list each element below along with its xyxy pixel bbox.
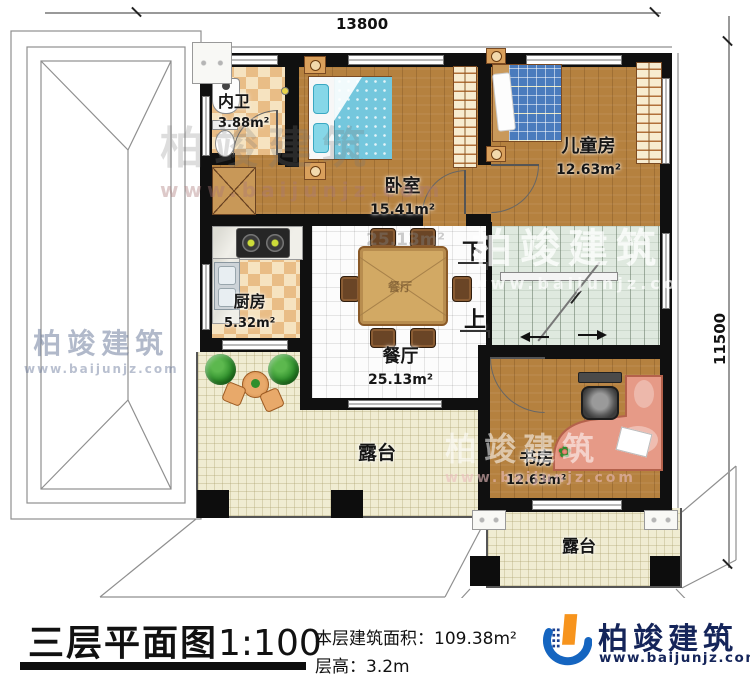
stairs-up-leader [460, 330, 490, 332]
stairs-up-leader-drop [488, 330, 490, 338]
title-underline [20, 662, 306, 670]
table-label: 餐厅 [388, 278, 412, 295]
floor-area-label: 本层建筑面积： [315, 629, 434, 649]
pillow [313, 84, 329, 114]
window [532, 500, 622, 510]
wall-segment [278, 153, 299, 165]
closet [212, 167, 256, 215]
stairs-area [490, 226, 660, 347]
room-area: 5.32m² [224, 316, 275, 331]
room-name: 卧室 [385, 176, 421, 197]
stairs-down-leader [458, 262, 488, 264]
window [202, 96, 210, 156]
brand-logo-icon [538, 610, 592, 674]
brand-url: www.baijunjz.com [599, 650, 750, 666]
sink-basin [218, 266, 236, 285]
nightstand [304, 56, 326, 74]
toilet-bowl [215, 130, 235, 157]
bedroom-door-leaf [464, 170, 466, 214]
room-area: 3.88m² [218, 116, 269, 131]
floor-height-label: 层高： [315, 657, 366, 677]
wardrobe [636, 62, 662, 164]
wall-lamp-icon [281, 87, 289, 95]
wardrobe [453, 66, 477, 168]
floor-area-value: 109.38m² [434, 629, 517, 649]
floor-plan-canvas: 13800 11500 [0, 0, 750, 683]
floor-height-line: 层高：3.2m [315, 652, 410, 677]
stairs-down-leader-drop [486, 262, 488, 270]
plan-scale: 1:100 [218, 623, 322, 664]
room-label-bathroom: 内卫 3.88m² [218, 88, 269, 131]
wall-segment [285, 53, 299, 167]
column [470, 556, 500, 586]
dining-chair [340, 276, 360, 302]
window [348, 55, 444, 65]
patio-table-plant-icon [251, 379, 260, 388]
stairs-handrail [500, 272, 618, 281]
sliding-door-window [348, 400, 442, 408]
burner-icon [242, 234, 260, 252]
window [222, 340, 288, 350]
room-name: 儿童房 [562, 136, 616, 157]
room-name: 餐厅 [383, 346, 419, 367]
wall-segment [478, 345, 490, 512]
dimension-top-value: 13800 [336, 15, 388, 33]
terrace-small-label: 露台 [562, 532, 596, 557]
kids-room-door-leaf [491, 164, 539, 166]
bed-plaid-blanket [509, 65, 561, 141]
dining-ghost-area: 25.13m² [366, 230, 445, 250]
window [662, 233, 670, 309]
column [650, 556, 680, 586]
bed-kids [492, 64, 562, 142]
room-area: 25.13m² [368, 372, 433, 388]
room-name: 厨房 [234, 292, 266, 311]
bed-double [308, 76, 392, 160]
stove [236, 228, 290, 258]
ornament-corbel [192, 42, 232, 84]
bathroom-door-leaf [276, 110, 278, 155]
window [202, 264, 210, 330]
plan-title-text: 三层平面图 [28, 623, 218, 664]
dining-table: 餐厅 [358, 246, 448, 326]
column [197, 490, 229, 518]
room-label-bedroom: 卧室 15.41m² [370, 172, 435, 219]
office-chair [581, 386, 619, 420]
room-area: 12.63m² [556, 162, 621, 178]
stairs-arrow-icon [597, 330, 607, 340]
floor-area-line: 本层建筑面积：109.38m² [315, 624, 517, 649]
room-area: 12.63m² [506, 473, 566, 488]
dimension-right-value: 11500 [711, 309, 729, 369]
nightstand [486, 146, 506, 162]
stairs-arrow-line [578, 334, 598, 336]
wall-segment [486, 222, 492, 347]
room-label-study: 书房 12.63m² [506, 444, 566, 489]
monitor [578, 372, 622, 383]
room-name: 书房 [519, 449, 553, 469]
nightstand [304, 162, 326, 180]
room-label-dining: 餐厅 25.13m² [368, 342, 433, 389]
ornament-corbel [644, 510, 678, 530]
plant [205, 354, 236, 385]
terrace-main-label: 露台 [358, 438, 396, 465]
nightstand [486, 48, 506, 64]
plant [268, 354, 299, 385]
burner-icon [266, 234, 284, 252]
window [662, 78, 670, 164]
ornament-corbel [472, 510, 506, 530]
dining-chair [452, 276, 472, 302]
wall-segment [200, 214, 307, 226]
stairs-arrow-icon [520, 332, 530, 342]
floor-height-value: 3.2m [366, 657, 410, 677]
room-name: 内卫 [218, 92, 250, 111]
room-label-kitchen: 厨房 5.32m² [224, 288, 275, 331]
stairs-arrow-line [529, 336, 549, 338]
title-block: 三层平面图1:100 本层建筑面积：109.38m² 层高：3.2m 柏竣建筑 … [0, 598, 750, 683]
room-label-kids: 儿童房 12.63m² [556, 132, 621, 179]
pillow [313, 123, 329, 153]
plan-title: 三层平面图1:100 [28, 614, 322, 666]
column [331, 490, 363, 518]
room-area: 15.41m² [370, 202, 435, 218]
dimension-line-right [728, 16, 730, 568]
study-door-leaf [490, 357, 545, 359]
